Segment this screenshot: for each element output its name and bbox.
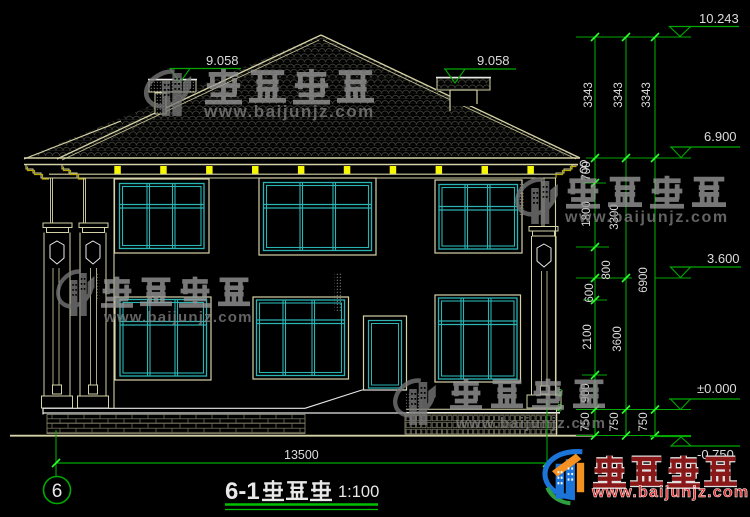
svg-text:750: 750 (609, 412, 621, 431)
svg-text:3.600: 3.600 (707, 251, 740, 266)
svg-text:6: 6 (52, 481, 63, 502)
svg-text:3343: 3343 (583, 82, 595, 108)
svg-text:www.baijunjz.com: www.baijunjz.com (455, 415, 606, 432)
svg-text:www.baijunjz.com: www.baijunjz.com (103, 309, 253, 326)
svg-text:6.900: 6.900 (704, 129, 737, 144)
svg-text:www.baijunjz.com: www.baijunjz.com (564, 209, 729, 226)
svg-text:3600: 3600 (612, 326, 624, 352)
svg-text:9.058: 9.058 (477, 53, 510, 68)
svg-text:13500: 13500 (284, 448, 319, 462)
svg-text:800: 800 (601, 260, 613, 279)
svg-text:2100: 2100 (582, 324, 594, 350)
svg-text:10.243: 10.243 (699, 11, 739, 26)
svg-text:www.baijunjz.com: www.baijunjz.com (591, 484, 749, 501)
svg-text:750: 750 (638, 412, 650, 431)
svg-text:3343: 3343 (613, 82, 625, 108)
svg-text:6-1: 6-1 (225, 478, 260, 505)
svg-text:1:100: 1:100 (338, 483, 379, 501)
svg-text:600: 600 (584, 283, 596, 302)
svg-text:www.baijunjz.com: www.baijunjz.com (203, 102, 375, 121)
svg-text:3343: 3343 (641, 82, 653, 108)
svg-text:9.058: 9.058 (206, 53, 239, 68)
svg-text:±0.000: ±0.000 (697, 381, 737, 396)
svg-text:6900: 6900 (638, 267, 650, 293)
